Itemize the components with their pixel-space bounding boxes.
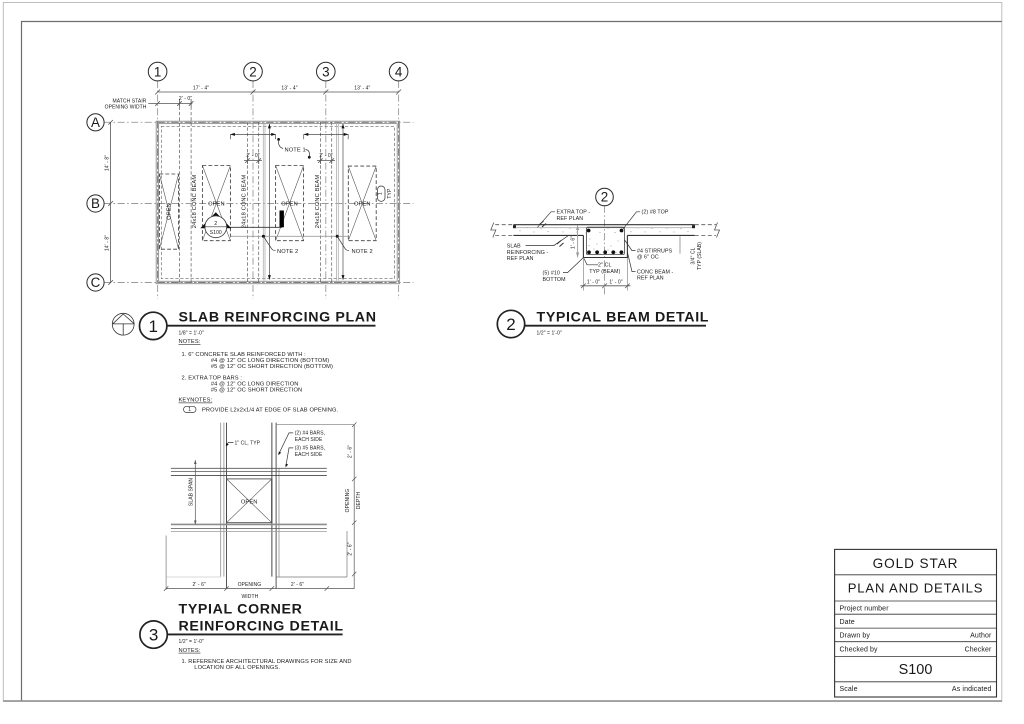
svg-text:EXTRA TOP -: EXTRA TOP - <box>557 210 591 216</box>
svg-text:OPEN: OPEN <box>281 201 298 207</box>
svg-text:13' - 4": 13' - 4" <box>281 86 297 92</box>
svg-text:1' - 6": 1' - 6" <box>571 236 577 249</box>
svg-text:#5 @ 12" OC SHORT DIRECTION: #5 @ 12" OC SHORT DIRECTION <box>211 388 302 394</box>
svg-text:1. REFERENCE ARCHITECTURAL: 1. REFERENCE ARCHITECTURAL DRAWINGS FOR … <box>182 659 352 665</box>
svg-text:OPENING: OPENING <box>238 582 262 588</box>
svg-text:GOLD STAR: GOLD STAR <box>873 556 959 571</box>
svg-text:BOTTOM: BOTTOM <box>543 277 566 283</box>
svg-text:Project number: Project number <box>840 605 890 612</box>
svg-text:2' - 6": 2' - 6" <box>348 542 354 555</box>
svg-text:(2) #8 TOP: (2) #8 TOP <box>642 210 669 216</box>
svg-text:NOTE 2: NOTE 2 <box>352 249 373 255</box>
svg-text:Drawn by: Drawn by <box>840 632 871 639</box>
svg-text:1: 1 <box>154 64 161 79</box>
svg-text:#4 STIRRUPS: #4 STIRRUPS <box>637 248 673 254</box>
svg-text:EACH SIDE: EACH SIDE <box>295 437 323 443</box>
svg-text:REINFORCING -: REINFORCING - <box>507 250 549 256</box>
svg-text:TYPICAL BEAM DETAIL: TYPICAL BEAM DETAIL <box>537 310 710 326</box>
svg-text:1/2" = 1'-0": 1/2" = 1'-0" <box>179 639 204 645</box>
svg-text:OPEN: OPEN <box>241 500 258 506</box>
svg-text:1/8" = 1'-0": 1/8" = 1'-0" <box>179 330 204 336</box>
svg-text:S100: S100 <box>899 662 933 678</box>
svg-text:13' - 4": 13' - 4" <box>354 86 370 92</box>
svg-text:1. 6" CONCRETE SLAB REINFORC: 1. 6" CONCRETE SLAB REINFORCED WITH : <box>182 352 307 358</box>
svg-text:2' - 0": 2' - 0" <box>179 96 192 102</box>
svg-text:PLAN AND DETAILS: PLAN AND DETAILS <box>848 581 984 596</box>
svg-text:MATCH STAIR: MATCH STAIR <box>112 98 146 104</box>
svg-text:OPEN: OPEN <box>354 201 371 207</box>
svg-text:2" CL: 2" CL <box>598 263 612 269</box>
svg-text:2' - 6": 2' - 6" <box>291 582 304 588</box>
svg-text:#4 @ 12" OC LONG DIRECTION (BO: #4 @ 12" OC LONG DIRECTION (BOTTOM) <box>211 358 329 364</box>
svg-text:#4 @ 12" OC LONG DIRECTION: #4 @ 12" OC LONG DIRECTION <box>211 382 299 388</box>
svg-text:Author: Author <box>970 632 992 639</box>
svg-text:17' - 4": 17' - 4" <box>193 86 209 92</box>
svg-text:Scale: Scale <box>840 686 858 693</box>
svg-text:2: 2 <box>601 190 608 205</box>
svg-text:3: 3 <box>322 64 329 79</box>
svg-text:WIDTH: WIDTH <box>242 594 259 600</box>
svg-text:OPEN: OPEN <box>208 201 225 207</box>
svg-text:24x18 CONC BEAM: 24x18 CONC BEAM <box>242 175 248 229</box>
svg-text:LOCATION OF ALL OPENINGS.: LOCATION OF ALL OPENINGS. <box>194 665 280 671</box>
svg-text:1: 1 <box>188 407 191 413</box>
svg-text:@ 6" OC: @ 6" OC <box>637 255 659 261</box>
svg-text:REF PLAN: REF PLAN <box>637 276 664 282</box>
svg-text:2. EXTRA TOP BARS :: 2. EXTRA TOP BARS : <box>182 375 243 381</box>
svg-text:SLAB: SLAB <box>507 244 521 250</box>
svg-text:EACH SIDE: EACH SIDE <box>295 452 323 458</box>
svg-text:3: 3 <box>149 626 158 645</box>
svg-text:REINFORCING DETAIL: REINFORCING DETAIL <box>179 619 344 635</box>
svg-text:PROVIDE L2x2x1/4 AT EDGE OF SL: PROVIDE L2x2x1/4 AT EDGE OF SLAB OPENING… <box>202 407 339 413</box>
svg-text:SLAB SPAN: SLAB SPAN <box>189 478 195 506</box>
svg-text:TYP (SLAB): TYP (SLAB) <box>697 242 703 270</box>
svg-text:1/2" = 1'-0": 1/2" = 1'-0" <box>537 330 562 336</box>
svg-text:TYP: TYP <box>387 188 393 199</box>
svg-text:1" CL, TYP: 1" CL, TYP <box>235 440 261 446</box>
svg-text:2' - 0": 2' - 0" <box>319 153 332 159</box>
svg-text:3/4" CL: 3/4" CL <box>691 247 697 264</box>
svg-text:OPENING WIDTH: OPENING WIDTH <box>105 105 147 111</box>
svg-text:(3) #5 BARS,: (3) #5 BARS, <box>295 446 325 452</box>
svg-text:TYP (BEAM): TYP (BEAM) <box>589 269 620 275</box>
svg-text:SLAB REINFORCING PLAN: SLAB REINFORCING PLAN <box>179 310 377 326</box>
svg-text:(5) #10: (5) #10 <box>543 271 560 277</box>
svg-text:1' - 0": 1' - 0" <box>587 280 600 286</box>
svg-text:14' - 8": 14' - 8" <box>105 235 111 251</box>
svg-text:Date: Date <box>840 619 855 626</box>
svg-text:NOTE 1: NOTE 1 <box>285 148 306 154</box>
svg-text:A: A <box>91 115 100 130</box>
svg-text:24x18 CONC BEAM: 24x18 CONC BEAM <box>192 175 198 229</box>
svg-text:OPENING: OPENING <box>345 489 351 513</box>
svg-text:24x18 CONC BEAM: 24x18 CONC BEAM <box>315 175 321 229</box>
svg-text:(2) #4 BARS,: (2) #4 BARS, <box>295 431 325 437</box>
svg-text:1' - 0": 1' - 0" <box>609 280 622 286</box>
svg-text:2' - 6": 2' - 6" <box>348 445 354 458</box>
svg-text:TYPIAL CORNER: TYPIAL CORNER <box>179 602 303 618</box>
svg-text:CONC BEAM -: CONC BEAM - <box>637 269 674 275</box>
svg-text:S100: S100 <box>210 230 222 236</box>
svg-text:14' - 8": 14' - 8" <box>105 155 111 171</box>
svg-text:2: 2 <box>506 315 515 334</box>
svg-text:KEYNOTES:: KEYNOTES: <box>179 398 213 404</box>
svg-text:Checker: Checker <box>965 646 992 653</box>
svg-text:B: B <box>91 196 100 211</box>
svg-text:NOTES:: NOTES: <box>179 648 201 654</box>
svg-text:#5 @ 12" OC SHORT DIRECTION (B: #5 @ 12" OC SHORT DIRECTION (BOTTOM) <box>211 364 333 370</box>
svg-text:NOTE 2: NOTE 2 <box>277 249 298 255</box>
svg-text:2' - 6": 2' - 6" <box>193 582 206 588</box>
svg-text:4: 4 <box>395 64 403 79</box>
svg-text:1: 1 <box>148 317 157 336</box>
svg-text:OPEN: OPEN <box>167 203 173 220</box>
svg-text:1: 1 <box>378 192 384 195</box>
svg-text:C: C <box>91 275 101 290</box>
svg-text:DEPTH: DEPTH <box>356 492 362 510</box>
svg-text:REF PLAN: REF PLAN <box>557 216 584 222</box>
svg-text:Checked by: Checked by <box>840 646 879 653</box>
svg-text:2: 2 <box>214 221 217 227</box>
svg-text:2: 2 <box>249 64 256 79</box>
svg-text:As indicated: As indicated <box>952 686 992 693</box>
svg-text:REF PLAN: REF PLAN <box>507 256 534 262</box>
svg-text:NOTES:: NOTES: <box>179 339 201 345</box>
svg-text:2' - 0": 2' - 0" <box>246 153 259 159</box>
